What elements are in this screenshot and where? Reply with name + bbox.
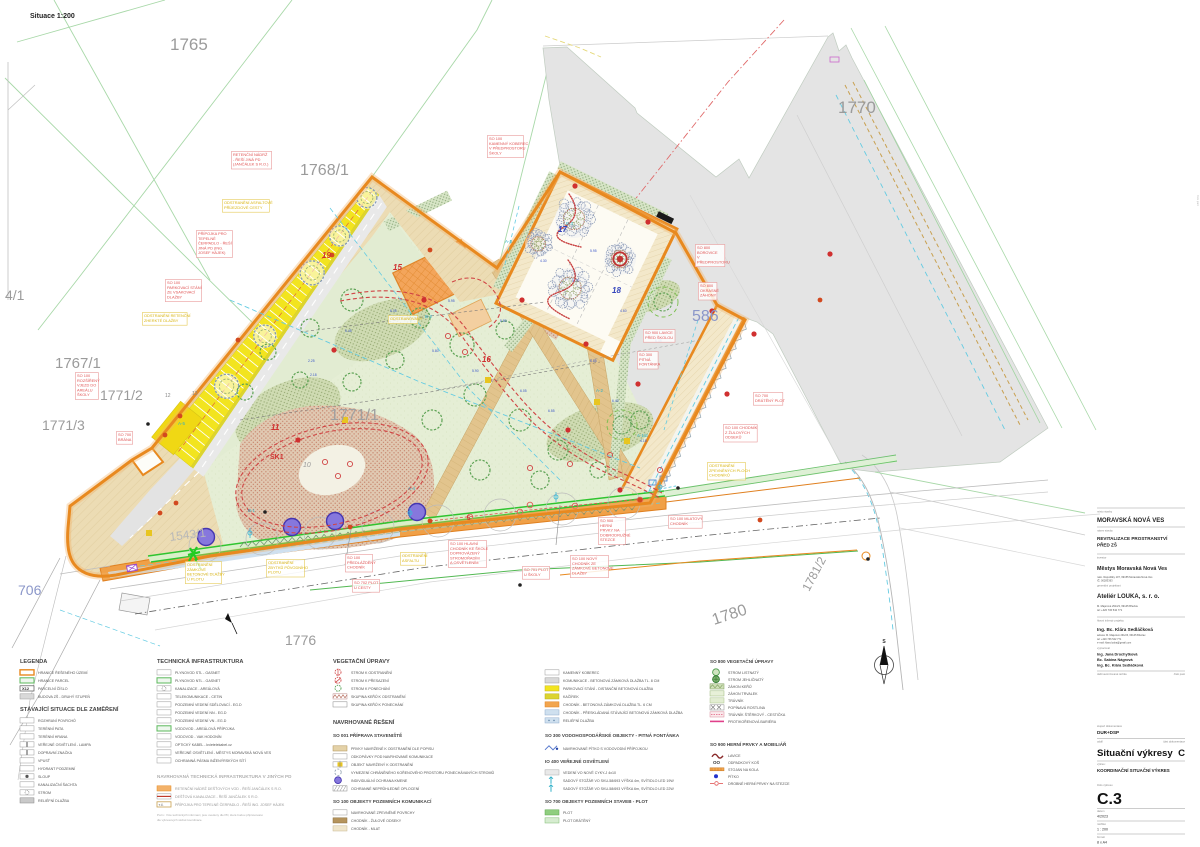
svg-text:Bc. Sabina Nágrová: Bc. Sabina Nágrová	[1097, 658, 1134, 662]
svg-text:1776: 1776	[285, 632, 316, 648]
svg-text:dle výkresových složek koordin: dle výkresových složek koordinace.	[157, 818, 203, 822]
svg-text:místo stavby: místo stavby	[1097, 510, 1113, 514]
svg-text:A-2: A-2	[596, 388, 604, 393]
svg-text:U PLOTU: U PLOTU	[187, 576, 204, 581]
svg-text:B-1: B-1	[248, 508, 256, 513]
svg-text:CHODNÍK - PŘESKLÁDANÁ STÁVAJÍC: CHODNÍK - PŘESKLÁDANÁ STÁVAJÍCÍ BETONOVÁ…	[563, 710, 683, 715]
svg-text:PODZEMNÍ VEDENÍ NN - EG.D: PODZEMNÍ VEDENÍ NN - EG.D	[175, 711, 227, 715]
svg-text:NAVRHOVANÉ ŘEŠENÍ: NAVRHOVANÉ ŘEŠENÍ	[333, 718, 395, 726]
svg-text:PŘED ZŠ: PŘED ZŠ	[1097, 541, 1117, 548]
svg-text:PLYNOVOD NTL - GASNET: PLYNOVOD NTL - GASNET	[175, 679, 221, 683]
svg-text:KANALIZACE - AREÁLOVÁ: KANALIZACE - AREÁLOVÁ	[175, 687, 220, 691]
svg-text:Ing. Jana Drochytková: Ing. Jana Drochytková	[1097, 653, 1138, 657]
svg-text:A-1/6: A-1/6	[637, 433, 648, 438]
svg-text:REVITALIZACE PROSTRANSTVÍ: REVITALIZACE PROSTRANSTVÍ	[1097, 534, 1168, 541]
svg-text:OCHRANNÉ NEPRŮHLEDNÉ OPLOCENÍ: OCHRANNÉ NEPRŮHLEDNÉ OPLOCENÍ	[351, 786, 419, 791]
svg-text:STEZCE: STEZCE	[600, 537, 616, 542]
svg-text:Situační výkresy: Situační výkresy	[1097, 748, 1173, 759]
svg-text:STOJAN NA KOLA: STOJAN NA KOLA	[728, 768, 759, 772]
svg-text:IO 400 VEŘEJNÉ OSVĚTLENÍ: IO 400 VEŘEJNÉ OSVĚTLENÍ	[545, 757, 610, 764]
svg-text:číslo výkresu: číslo výkresu	[1097, 783, 1113, 787]
svg-text:DLAŽBY: DLAŽBY	[572, 570, 588, 575]
svg-text:SO 100 OBJEKTY POZEMNÍCH KOMUN: SO 100 OBJEKTY POZEMNÍCH KOMUNIKACÍ	[333, 797, 432, 804]
svg-text:PŘÍJEZDOVÉ CESTY: PŘÍJEZDOVÉ CESTY	[224, 205, 263, 210]
svg-text:PLYNOVOD STL - GASNET: PLYNOVOD STL - GASNET	[175, 671, 221, 675]
svg-text:PŘÍPOJKA PRO TEPELNÉ ČERPADLO: PŘÍPOJKA PRO TEPELNÉ ČERPADLO - ŘEŠÍ ING…	[175, 802, 285, 807]
svg-text:VYMEZENÍ CHRÁNĚNÉHO KOŘENOVÉHO: VYMEZENÍ CHRÁNĚNÉHO KOŘENOVÉHO PROSTORU …	[351, 770, 494, 775]
svg-text:4/1: 4/1	[5, 287, 25, 303]
svg-text:hlavní inženýr projektu: hlavní inženýr projektu	[1097, 619, 1124, 623]
svg-text:6.05: 6.05	[390, 309, 397, 313]
svg-text:DEŠŤOVÁ KANALIZACE - ŘEŠÍ JANČ: DEŠŤOVÁ KANALIZACE - ŘEŠÍ JANČÁLEK S R.O…	[175, 794, 258, 799]
svg-text:RETENČNÍ NÁDRŽ DEŠŤOVÝCH VOD -: RETENČNÍ NÁDRŽ DEŠŤOVÝCH VOD - ŘEŠÍ JANČ…	[175, 786, 282, 791]
svg-text:oddíl: oddíl	[1097, 740, 1103, 744]
svg-text:A-3: A-3	[505, 239, 513, 244]
svg-text:BRÁNA: BRÁNA	[118, 437, 132, 442]
svg-text:5.75: 5.75	[572, 279, 579, 283]
svg-text:(JANČÁLEK S R.O.): (JANČÁLEK S R.O.)	[233, 162, 269, 167]
svg-text:SKUPINA KEŘŮ K ODSTRANĚNÍ: SKUPINA KEŘŮ K ODSTRANĚNÍ	[351, 694, 406, 699]
svg-text:ODPADKOVÝ KOŠ: ODPADKOVÝ KOŠ	[728, 760, 760, 765]
svg-text:DRÁTĚNÝ PLOT: DRÁTĚNÝ PLOT	[755, 398, 785, 403]
svg-text:4/2023: 4/2023	[1097, 815, 1108, 819]
svg-text:KAČÍREK: KAČÍREK	[563, 694, 579, 699]
svg-text:5.80: 5.80	[432, 349, 439, 353]
svg-text:tel: +420 736 542 771: tel: +420 736 542 771	[1097, 608, 1123, 612]
svg-text:PÍTKO: PÍTKO	[728, 775, 739, 779]
svg-text:TELEKOMUNIKACE - CETIN: TELEKOMUNIKACE - CETIN	[175, 695, 223, 699]
svg-text:INDIVIDUÁLNÍ OCHRANA KMENE: INDIVIDUÁLNÍ OCHRANA KMENE	[351, 779, 408, 783]
svg-text:KOORDINAČNÍ SITUAČNÍ VÝKRES: KOORDINAČNÍ SITUAČNÍ VÝKRES	[1097, 768, 1170, 773]
svg-text:další autorizovaná razítka: další autorizovaná razítka	[1097, 672, 1127, 676]
svg-text:VEŘEJNÉ OSVĚTLENÍ - MĚSTYS MOR: VEŘEJNÉ OSVĚTLENÍ - MĚSTYS MORAVSKÁ NOVÁ…	[175, 750, 272, 755]
svg-text:NAVRHOVANÉ ZPEVNĚNÉ POVRCHY: NAVRHOVANÉ ZPEVNĚNÉ POVRCHY	[351, 810, 415, 815]
svg-text:ZÁHON KEŘŮ: ZÁHON KEŘŮ	[728, 684, 752, 689]
svg-text:výkres:: výkres:	[1097, 762, 1106, 766]
svg-text:MORAVSKÁ NOVÁ VES: MORAVSKÁ NOVÁ VES	[1097, 517, 1164, 524]
svg-text:5.90: 5.90	[472, 369, 479, 373]
svg-text:PARKOVACÍ STÁNÍ - DISTANČNÍ BE: PARKOVACÍ STÁNÍ - DISTANČNÍ BETONOVÁ DLA…	[563, 686, 654, 691]
svg-text:číslo paré: číslo paré	[1174, 672, 1186, 676]
svg-text:VODOVOD - VAK HODONÍN: VODOVOD - VAK HODONÍN	[175, 735, 222, 739]
svg-text:měřítko: měřítko	[1097, 822, 1106, 826]
svg-text:19: 19	[322, 251, 331, 260]
svg-text:5.95: 5.95	[448, 299, 455, 303]
svg-text:ŠKOLY: ŠKOLY	[489, 150, 502, 155]
svg-text:SO 001 PŘÍPRAVA STAVENIŠTĚ: SO 001 PŘÍPRAVA STAVENIŠTĚ	[333, 731, 402, 738]
svg-text:6.85: 6.85	[590, 359, 597, 363]
svg-text:CHODNÍK - BETONOVÁ ZÁMKOVÁ DLA: CHODNÍK - BETONOVÁ ZÁMKOVÁ DLAŽBA TL. 6 …	[563, 702, 652, 707]
svg-text:OBJEKT NAVRŽENÝ K ODSTRANĚNÍ: OBJEKT NAVRŽENÝ K ODSTRANĚNÍ	[351, 762, 413, 767]
svg-text:ODSTRAŇOVANÝ: ODSTRAŇOVANÝ	[390, 316, 423, 321]
svg-text:ŠKOLY: ŠKOLY	[77, 392, 90, 397]
svg-text:TERÉNNÍ PATA: TERÉNNÍ PATA	[38, 726, 64, 731]
svg-text:1771/1: 1771/1	[330, 407, 379, 424]
svg-text:SO 800 VEGETAČNÍ ÚPRAVY: SO 800 VEGETAČNÍ ÚPRAVY	[710, 657, 773, 664]
svg-text:Ing. Bc. Klára Sedláčková: Ing. Bc. Klára Sedláčková	[1097, 627, 1153, 632]
svg-text:A OSVĚTLENÍM: A OSVĚTLENÍM	[450, 560, 479, 565]
svg-text:1767/1: 1767/1	[55, 355, 101, 372]
svg-text:C: C	[1178, 748, 1185, 759]
svg-text:4.15: 4.15	[640, 439, 647, 443]
svg-text:4.30: 4.30	[540, 259, 547, 263]
svg-text:1765: 1765	[170, 35, 208, 54]
svg-text:1768/1: 1768/1	[300, 162, 349, 179]
svg-text:CHODNÍK: CHODNÍK	[347, 565, 365, 570]
svg-text:SO 700 OBJEKTY POZEMNÍCH STAVE: SO 700 OBJEKTY POZEMNÍCH STAVEB - PLOT	[545, 797, 648, 804]
svg-text:HRANICE ŘEŠENÉHO ÚZEMÍ: HRANICE ŘEŠENÉHO ÚZEMÍ	[38, 670, 88, 675]
svg-text:KAMENNÝ KOBEREC: KAMENNÝ KOBEREC	[563, 671, 600, 675]
svg-text:12: 12	[165, 393, 171, 399]
svg-text:TERÉNNÍ HRANA: TERÉNNÍ HRANA	[38, 734, 68, 739]
svg-text:1771/2: 1771/2	[100, 387, 143, 403]
svg-text:VEDENÍ VO NOVÉ CYKY-J 4x10: VEDENÍ VO NOVÉ CYKY-J 4x10	[563, 770, 616, 775]
svg-text:STROM LISTNATÝ: STROM LISTNATÝ	[728, 671, 759, 675]
svg-text:TRÁVNÍK ŠTĚRKOVÝ - CESTIČKA: TRÁVNÍK ŠTĚRKOVÝ - CESTIČKA	[728, 712, 786, 717]
svg-text:vypracoval: vypracoval	[1097, 646, 1110, 650]
svg-text:NAVRHOVANÉ PÍTKO S VODOVODNÍ P: NAVRHOVANÉ PÍTKO S VODOVODNÍ PŘÍPOJKOU	[563, 746, 648, 751]
svg-text:číslo paré: číslo paré	[1196, 195, 1199, 206]
svg-text:adresa: M. Majerové 291/23, 69: adresa: M. Majerové 291/23, 69145 Břecla…	[1097, 634, 1146, 637]
svg-text:OCHRANNÁ PÁSMA INŽENÝRSKÝCH SÍ: OCHRANNÁ PÁSMA INŽENÝRSKÝCH SÍTÍ	[175, 758, 246, 763]
svg-text:TECHNICKÁ INFRASTRUKTURA: TECHNICKÁ INFRASTRUKTURA	[157, 658, 243, 665]
svg-text:STROM: STROM	[38, 791, 51, 795]
svg-text:LAVICE: LAVICE	[728, 754, 741, 758]
svg-text:ASFALTU: ASFALTU	[402, 558, 419, 563]
svg-text:OO: OO	[713, 760, 721, 765]
svg-text:17: 17	[558, 225, 567, 234]
svg-text:SO 900 HERNÍ PRVKY A MOBILIÁŘ: SO 900 HERNÍ PRVKY A MOBILIÁŘ	[710, 740, 787, 747]
svg-text:STROM JEHLIČNATÝ: STROM JEHLIČNATÝ	[728, 677, 764, 682]
svg-text:Městys Moravská Nová Ves: Městys Moravská Nová Ves	[1097, 566, 1167, 572]
svg-text:PLOT DRÁTĚNÝ: PLOT DRÁTĚNÝ	[563, 818, 591, 823]
svg-text:datum: datum	[1097, 809, 1105, 813]
svg-text:STÁVAJÍCÍ SITUACE DLE ZAMĚŘENÍ: STÁVAJÍCÍ SITUACE DLE ZAMĚŘENÍ	[20, 705, 119, 713]
svg-text:VEŘEJNÉ OSVĚTLENÍ - LAMPA: VEŘEJNÉ OSVĚTLENÍ - LAMPA	[38, 742, 91, 747]
svg-text:5.80: 5.80	[500, 319, 507, 323]
svg-text:1770: 1770	[838, 98, 876, 117]
svg-text:15: 15	[393, 263, 402, 272]
svg-text:ZÁHON TRVALEK: ZÁHON TRVALEK	[728, 692, 758, 696]
svg-text:DUR+DSP: DUR+DSP	[1097, 730, 1119, 735]
svg-text:STROM K PONECHÁNÍ: STROM K PONECHÁNÍ	[351, 687, 390, 691]
svg-text:DLAŽBY: DLAŽBY	[167, 294, 183, 299]
svg-text:HYDRANT PODZEMNÍ: HYDRANT PODZEMNÍ	[38, 767, 75, 771]
svg-text:KOMUNIKACE - BETONOVÁ ZÁMKOVÁ: KOMUNIKACE - BETONOVÁ ZÁMKOVÁ DLAŽBA TL.…	[563, 678, 659, 683]
svg-text:RELIÉFNÍ DLAŽBA: RELIÉFNÍ DLAŽBA	[563, 718, 595, 723]
svg-text:SO 300 VODOHOSPODÁŘSKÉ OBJEKTY: SO 300 VODOHOSPODÁŘSKÉ OBJEKTY - PITNÁ F…	[545, 731, 680, 738]
svg-text:6.40: 6.40	[612, 399, 619, 403]
svg-text:706: 706	[18, 582, 42, 598]
svg-text:1 : 200: 1 : 200	[1097, 828, 1108, 832]
svg-text:SADOVÝ STOŽÁR VO SKU-58/693 VÝ: SADOVÝ STOŽÁR VO SKU-58/693 VÝŠKA 6m, SV…	[563, 786, 674, 791]
svg-text:PŘED ŠKOLOU: PŘED ŠKOLOU	[645, 335, 673, 340]
svg-text:SLOUP: SLOUP	[38, 775, 51, 779]
svg-text:586: 586	[692, 308, 719, 325]
svg-text:BOROVICE: BOROVICE	[697, 250, 718, 255]
svg-text:VODOVOD - AREÁLOVÁ PŘÍPOJKA: VODOVOD - AREÁLOVÁ PŘÍPOJKA	[175, 726, 235, 731]
svg-text:POPÍNAVÁ ROSTLINA: POPÍNAVÁ ROSTLINA	[728, 706, 766, 710]
svg-text:10: 10	[303, 462, 311, 469]
svg-text:4.60: 4.60	[620, 309, 627, 313]
svg-text:HRANICE PARCEL: HRANICE PARCEL	[38, 679, 69, 683]
svg-text:A-4: A-4	[408, 486, 416, 491]
svg-text:T.Č.: T.Č.	[159, 802, 165, 807]
svg-text:investor: investor	[1097, 556, 1107, 560]
svg-text:B-2: B-2	[425, 314, 433, 319]
svg-text:ROZHRANÍ POVRCHŮ: ROZHRANÍ POVRCHŮ	[38, 718, 76, 723]
svg-text:e-mail: klara.louka@gmail.com: e-mail: klara.louka@gmail.com	[1097, 642, 1131, 645]
svg-text:STROM K ODSTRANĚNÍ: STROM K ODSTRANĚNÍ	[351, 670, 392, 675]
svg-text:VEGETAČNÍ ÚPRAVY: VEGETAČNÍ ÚPRAVY	[333, 657, 390, 665]
svg-text:ODKOPÁVKY POD NAVRHOVANÉ KOMUN: ODKOPÁVKY POD NAVRHOVANÉ KOMUNIKACE	[351, 754, 434, 759]
svg-text:Ateliér LOUKA, s. r. o.: Ateliér LOUKA, s. r. o.	[1097, 594, 1160, 600]
svg-text:8 x A4: 8 x A4	[1097, 841, 1107, 845]
svg-text:2.18: 2.18	[310, 373, 317, 377]
svg-text:DROBNÉ HERNÍ PRVKY NA STEZCE: DROBNÉ HERNÍ PRVKY NA STEZCE	[728, 781, 790, 786]
svg-text:ZÁHONY: ZÁHONY	[700, 293, 717, 298]
svg-text:2.25: 2.25	[308, 359, 315, 363]
svg-text:název stavby: název stavby	[1097, 529, 1113, 533]
svg-text:JOSEF HÁJEK): JOSEF HÁJEK)	[198, 250, 226, 255]
svg-text:C.3: C.3	[1097, 791, 1122, 808]
svg-text:PLOTU: PLOTU	[268, 570, 281, 575]
svg-text:CHODNÍK - ŽULOVÉ ODSEKY: CHODNÍK - ŽULOVÉ ODSEKY	[351, 818, 402, 823]
svg-text:CHODNÍK: CHODNÍK	[670, 521, 688, 526]
svg-text:část dokumentace: část dokumentace	[1163, 740, 1185, 744]
svg-text:5.95: 5.95	[590, 249, 597, 253]
svg-text:6.05: 6.05	[520, 389, 527, 393]
svg-text:formát: formát	[1097, 835, 1105, 839]
svg-text:PARCELNÍ ČÍSLO: PARCELNÍ ČÍSLO	[38, 686, 68, 691]
svg-text:PODZEMNÍ VEDENÍ VN - EG.D: PODZEMNÍ VEDENÍ VN - EG.D	[175, 719, 227, 723]
svg-text:M. Majerové 291/23, 69145 Břec: M. Majerové 291/23, 69145 Břeclav	[1097, 604, 1139, 608]
svg-text:U CESTY: U CESTY	[354, 585, 371, 590]
svg-text:SK1: SK1	[270, 454, 284, 461]
svg-text:ODSEKŮ: ODSEKŮ	[725, 435, 742, 440]
svg-text:PLOT: PLOT	[563, 811, 573, 815]
svg-text:1771/3: 1771/3	[42, 417, 85, 433]
svg-text:18: 18	[612, 286, 621, 295]
svg-text:X12: X12	[22, 686, 30, 691]
svg-text:11: 11	[271, 423, 280, 432]
svg-text:A-5: A-5	[178, 421, 186, 426]
svg-text:NAVRHOVANÁ TECHNICKÁ INFRASTRU: NAVRHOVANÁ TECHNICKÁ INFRASTRUKTURA V JI…	[157, 773, 292, 779]
svg-text:FONTÁNKA: FONTÁNKA	[639, 362, 661, 367]
svg-text:STROM K PŘESAZENÍ: STROM K PŘESAZENÍ	[351, 678, 389, 683]
svg-text:5.45: 5.45	[345, 329, 352, 333]
svg-text:RELIÉFNÍ DLAŽBA: RELIÉFNÍ DLAŽBA	[38, 798, 70, 803]
svg-text:6.55: 6.55	[548, 409, 555, 413]
svg-text:SADOVÝ STOŽÁR VO SKU-58/693 VÝ: SADOVÝ STOŽÁR VO SKU-58/693 VÝŠKA 4m, SV…	[563, 778, 674, 783]
svg-text:SKUPINA KEŘŮ K PONECHÁNÍ: SKUPINA KEŘŮ K PONECHÁNÍ	[351, 702, 403, 707]
svg-text:LEGENDA: LEGENDA	[20, 659, 47, 665]
svg-text:nám. Republiky 107, 69155 Mora: nám. Republiky 107, 69155 Moravská Nová …	[1097, 575, 1153, 579]
svg-text:PRVKY NAVRŽENÉ K ODSTRANĚNÍ DL: PRVKY NAVRŽENÉ K ODSTRANĚNÍ DLE POPISU	[351, 746, 434, 751]
svg-text:13: 13	[192, 391, 198, 397]
svg-text:TRÁVNÍK: TRÁVNÍK	[728, 699, 744, 703]
svg-text:Ing. Bc. Klára Sedláčková: Ing. Bc. Klára Sedláčková	[1097, 664, 1144, 668]
svg-text:B-3: B-3	[566, 221, 574, 226]
svg-text:KANALIZAČNÍ ŠACHTA: KANALIZAČNÍ ŠACHTA	[38, 782, 77, 787]
svg-text:16: 16	[482, 355, 491, 364]
svg-text:DOPRAVNÍ ZNAČKA: DOPRAVNÍ ZNAČKA	[38, 750, 73, 755]
svg-text:Situace 1:200: Situace 1:200	[30, 13, 75, 20]
svg-text:Pozn.: Více technických inform: Pozn.: Více technických informací, jsou …	[157, 813, 263, 817]
svg-text:generální projektant: generální projektant	[1097, 584, 1121, 588]
svg-text:U ŠKOLY: U ŠKOLY	[524, 572, 541, 577]
svg-text:BUDOVA ZŠ - DRUHÝ STUPEŇ: BUDOVA ZŠ - DRUHÝ STUPEŇ	[38, 694, 90, 699]
svg-text:OPTICKÝ KABEL - kvietelekabel.: OPTICKÝ KABEL - kvietelekabel.cz	[175, 743, 232, 747]
svg-text:PODZEMNÍ VEDENÍ SDĚLOVACÍ - EG: PODZEMNÍ VEDENÍ SDĚLOVACÍ - EG.D	[175, 702, 242, 707]
svg-text:stupeň dokumentace: stupeň dokumentace	[1097, 724, 1122, 728]
svg-text:tel: +420 736 542 771: tel: +420 736 542 771	[1097, 638, 1122, 641]
svg-text:PŘEDPROSTORU: PŘEDPROSTORU	[697, 259, 730, 264]
svg-text:PROTIKOŘENOVÁ BARIÉRA: PROTIKOŘENOVÁ BARIÉRA	[728, 719, 777, 724]
svg-text:VPUSŤ: VPUSŤ	[38, 758, 51, 763]
svg-text:CHODNÍKŮ: CHODNÍKŮ	[709, 473, 730, 478]
svg-text:CHODNÍK - MLAT: CHODNÍK - MLAT	[351, 827, 381, 831]
svg-text:ZHERKTÉ DLAŽBY: ZHERKTÉ DLAŽBY	[144, 318, 179, 323]
